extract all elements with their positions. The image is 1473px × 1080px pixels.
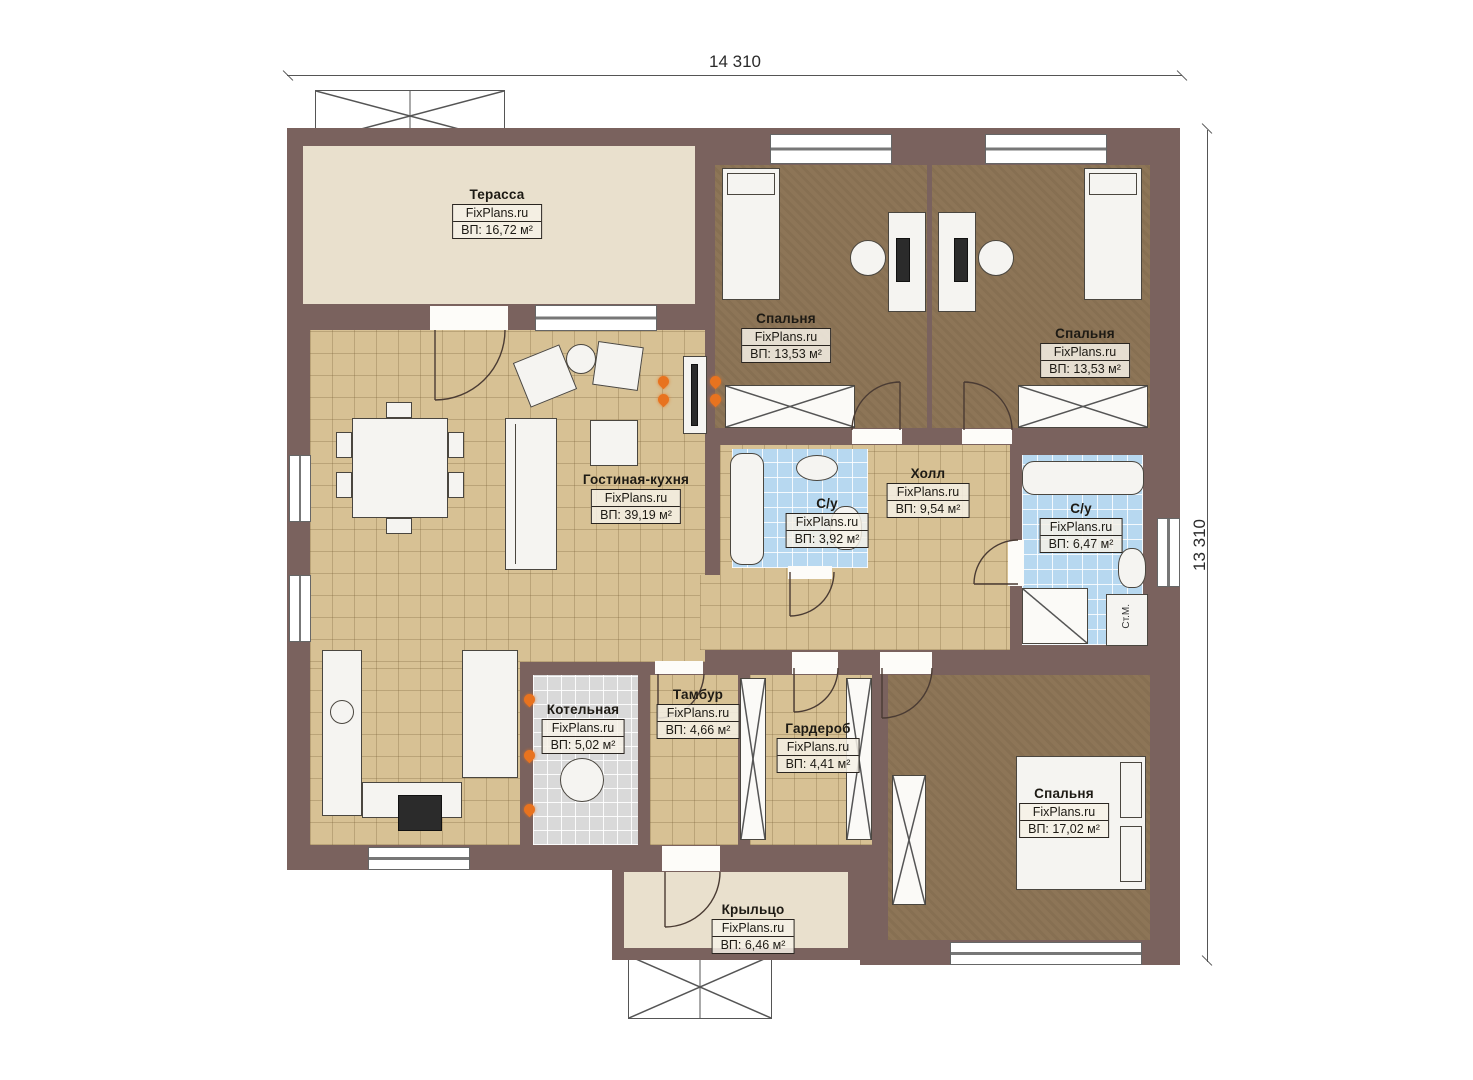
bath2-door-opening <box>1008 540 1024 586</box>
room-name: Холл <box>887 466 970 481</box>
pillow <box>1120 762 1142 818</box>
room-brand: FixPlans.ru <box>778 739 859 756</box>
kitchen-sink <box>330 700 354 724</box>
room-brand: FixPlans.ru <box>1020 804 1108 821</box>
bedroom1-window <box>770 134 892 164</box>
dining-chair <box>386 518 412 534</box>
pillow <box>1089 173 1137 195</box>
dimension-height-label: 13 310 <box>1190 500 1210 590</box>
kitchen-island <box>462 650 518 778</box>
room-area: ВП: 3,92 м² <box>787 531 868 547</box>
room-name: Спальня <box>741 311 831 326</box>
bathtub <box>1022 461 1144 495</box>
wardrobe-unit <box>725 385 855 428</box>
room-area: ВП: 9,54 м² <box>888 501 969 517</box>
room-brand: FixPlans.ru <box>1041 344 1129 361</box>
bedroom2-window <box>985 134 1107 164</box>
room-name: Гардероб <box>777 721 860 736</box>
room-name: Крыльцо <box>712 902 795 917</box>
living-left-window1 <box>289 455 311 522</box>
room-area: ВП: 39,19 м² <box>592 507 680 523</box>
room-name: Гостиная-кухня <box>583 472 689 487</box>
bedroom2-door-opening <box>962 429 1012 444</box>
room-name: Терасса <box>452 187 542 202</box>
dining-chair <box>336 472 352 498</box>
bedroom1-door-opening <box>852 429 902 444</box>
pillow <box>727 173 775 195</box>
room-label-hall: Холл FixPlans.ru ВП: 9,54 м² <box>887 466 970 518</box>
room-brand: FixPlans.ru <box>592 490 680 507</box>
stove <box>398 795 442 831</box>
dining-table <box>352 418 448 518</box>
toilet <box>1118 548 1146 588</box>
room-name: Спальня <box>1019 786 1109 801</box>
room-area: ВП: 4,66 м² <box>658 722 739 738</box>
dining-chair <box>336 432 352 458</box>
porch-steps <box>628 955 772 1019</box>
dimension-width-label: 14 310 <box>660 52 810 72</box>
room-area: ВП: 6,46 м² <box>713 937 794 953</box>
dining-chair <box>448 472 464 498</box>
tambur-door-opening <box>655 661 703 674</box>
room-area: ВП: 13,53 м² <box>1041 361 1129 377</box>
room-label-living: Гостиная-кухня FixPlans.ru ВП: 39,19 м² <box>583 472 689 524</box>
room-name: Спальня <box>1040 326 1130 341</box>
room-label-boiler: Котельная FixPlans.ru ВП: 5,02 м² <box>542 702 625 754</box>
room-area: ВП: 13,53 м² <box>742 346 830 362</box>
room-label-terrace: Терасса FixPlans.ru ВП: 16,72 м² <box>452 187 542 239</box>
dining-chair <box>448 432 464 458</box>
room-label-bedroom1: Спальня FixPlans.ru ВП: 13,53 м² <box>741 311 831 363</box>
pillow <box>1120 826 1142 882</box>
bedroom3-door-opening <box>880 652 932 674</box>
room-area: ВП: 16,72 м² <box>453 222 541 238</box>
tv-screen <box>691 364 698 426</box>
room-label-bedroom2: Спальня FixPlans.ru ВП: 13,53 м² <box>1040 326 1130 378</box>
room-brand: FixPlans.ru <box>1041 519 1122 536</box>
room-area: ВП: 5,02 м² <box>543 737 624 753</box>
terrace-door-opening <box>430 306 508 330</box>
room-brand: FixPlans.ru <box>742 329 830 346</box>
side-table <box>566 344 596 374</box>
desk-chair <box>978 240 1014 276</box>
room-label-bath1: С/у FixPlans.ru ВП: 3,92 м² <box>786 496 869 548</box>
room-area: ВП: 17,02 м² <box>1020 821 1108 837</box>
shower <box>1022 588 1088 644</box>
floor-plan: 14 310 13 310 <box>0 0 1473 1080</box>
room-brand: FixPlans.ru <box>888 484 969 501</box>
wardrobe-unit <box>892 775 926 905</box>
coffee-table <box>590 420 638 466</box>
room-label-porch: Крыльцо FixPlans.ru ВП: 6,46 м² <box>712 902 795 954</box>
kitchen-bottom-window <box>368 847 470 870</box>
room-label-bath2: С/у FixPlans.ru ВП: 6,47 м² <box>1040 501 1123 553</box>
bathtub <box>730 453 764 565</box>
room-area: ВП: 6,47 м² <box>1041 536 1122 552</box>
boiler <box>560 758 604 802</box>
dining-chair <box>386 402 412 418</box>
room-label-bedroom3: Спальня FixPlans.ru ВП: 17,02 м² <box>1019 786 1109 838</box>
bedroom3-bottom-window <box>950 942 1142 965</box>
desk-computer <box>954 238 968 282</box>
room-name: С/у <box>1040 501 1123 516</box>
living-left-window2 <box>289 575 311 642</box>
room-name: С/у <box>786 496 869 511</box>
sofa <box>505 418 557 570</box>
wardrobe-unit <box>740 678 766 840</box>
desk-computer <box>896 238 910 282</box>
sofa-back-line <box>515 424 516 564</box>
room-brand: FixPlans.ru <box>658 705 739 722</box>
armchair <box>592 341 644 391</box>
room-label-tambur: Тамбур FixPlans.ru ВП: 4,66 м² <box>657 687 740 739</box>
porch-door-opening <box>662 846 720 871</box>
room-brand: FixPlans.ru <box>453 205 541 222</box>
bath2-right-window <box>1157 518 1180 587</box>
terrace-living-window <box>535 305 657 331</box>
room-label-wardrobe: Гардероб FixPlans.ru ВП: 4,41 м² <box>777 721 860 773</box>
sink <box>796 455 838 481</box>
room-brand: FixPlans.ru <box>713 920 794 937</box>
wardrobe-unit <box>1018 385 1148 428</box>
room-name: Тамбур <box>657 687 740 702</box>
room-area: ВП: 4,41 м² <box>778 756 859 772</box>
dimension-line-top <box>287 75 1182 76</box>
room-name: Котельная <box>542 702 625 717</box>
kitchen-counter <box>322 650 362 816</box>
bath1-door-opening <box>788 566 832 579</box>
room-brand: FixPlans.ru <box>787 514 868 531</box>
desk-chair <box>850 240 886 276</box>
room-brand: FixPlans.ru <box>543 720 624 737</box>
washing-machine-label: Ст.М. <box>1121 604 1132 629</box>
wardrobe-door-opening <box>792 652 838 674</box>
